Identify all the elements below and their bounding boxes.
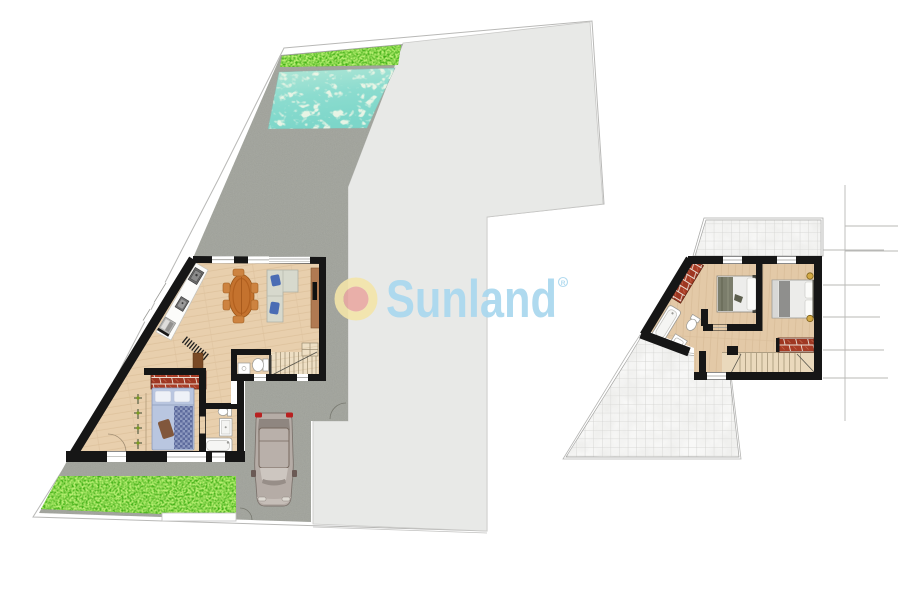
- svg-text:R: R: [561, 280, 566, 287]
- svg-text:Sunland: Sunland: [386, 270, 557, 329]
